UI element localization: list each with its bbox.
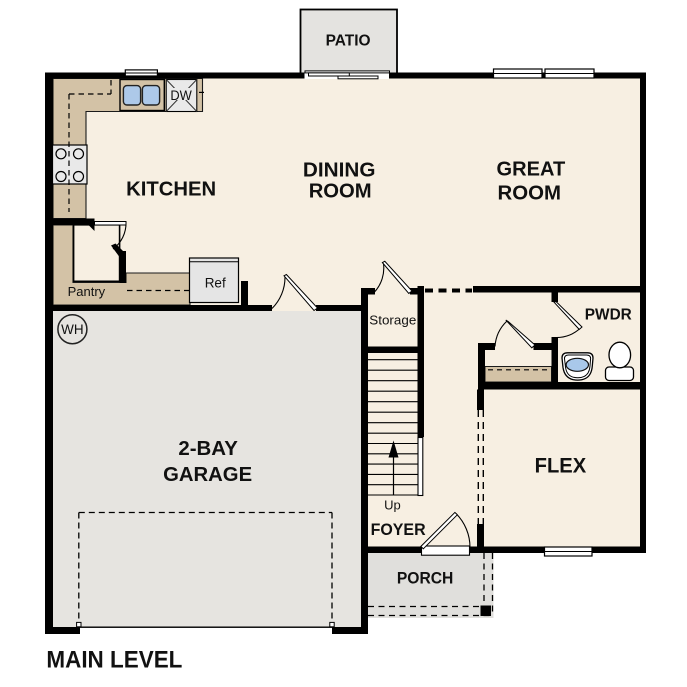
svg-text:Ref: Ref: [205, 276, 226, 291]
svg-text:KITCHEN: KITCHEN: [126, 177, 216, 200]
svg-text:FLEX: FLEX: [535, 455, 587, 478]
svg-text:GARAGE: GARAGE: [163, 463, 252, 486]
svg-text:FOYER: FOYER: [371, 520, 426, 539]
svg-text:MAIN LEVEL: MAIN LEVEL: [46, 647, 182, 674]
svg-text:WH: WH: [61, 322, 84, 337]
svg-text:ROOM: ROOM: [498, 182, 562, 205]
svg-text:PATIO: PATIO: [326, 33, 371, 50]
svg-text:Storage: Storage: [369, 313, 416, 328]
svg-text:GREAT: GREAT: [497, 158, 566, 181]
svg-text:2-BAY: 2-BAY: [178, 437, 238, 460]
svg-text:DW: DW: [170, 87, 192, 103]
svg-text:DINING: DINING: [303, 159, 376, 182]
svg-text:Pantry: Pantry: [68, 284, 106, 299]
svg-text:Up: Up: [384, 498, 401, 513]
svg-text:PORCH: PORCH: [397, 570, 454, 588]
svg-text:ROOM: ROOM: [309, 179, 372, 202]
svg-text:PWDR: PWDR: [585, 307, 632, 324]
